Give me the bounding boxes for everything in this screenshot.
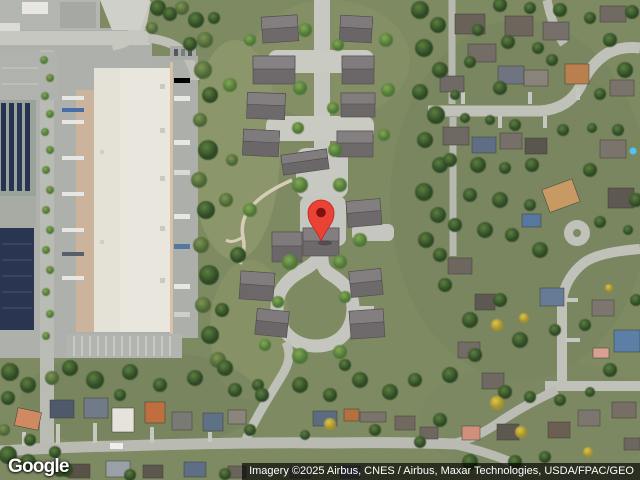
google-logo[interactable]: Google [8, 457, 69, 476]
map-viewport[interactable]: Google Imagery ©2025 Airbus, CNES / Airb… [0, 0, 640, 480]
attribution-text: Imagery ©2025 Airbus, CNES / Airbus, Max… [249, 465, 634, 477]
imagery-attribution: Imagery ©2025 Airbus, CNES / Airbus, Max… [242, 463, 640, 480]
satellite-imagery[interactable] [0, 0, 640, 480]
warehouse-building [94, 68, 172, 332]
